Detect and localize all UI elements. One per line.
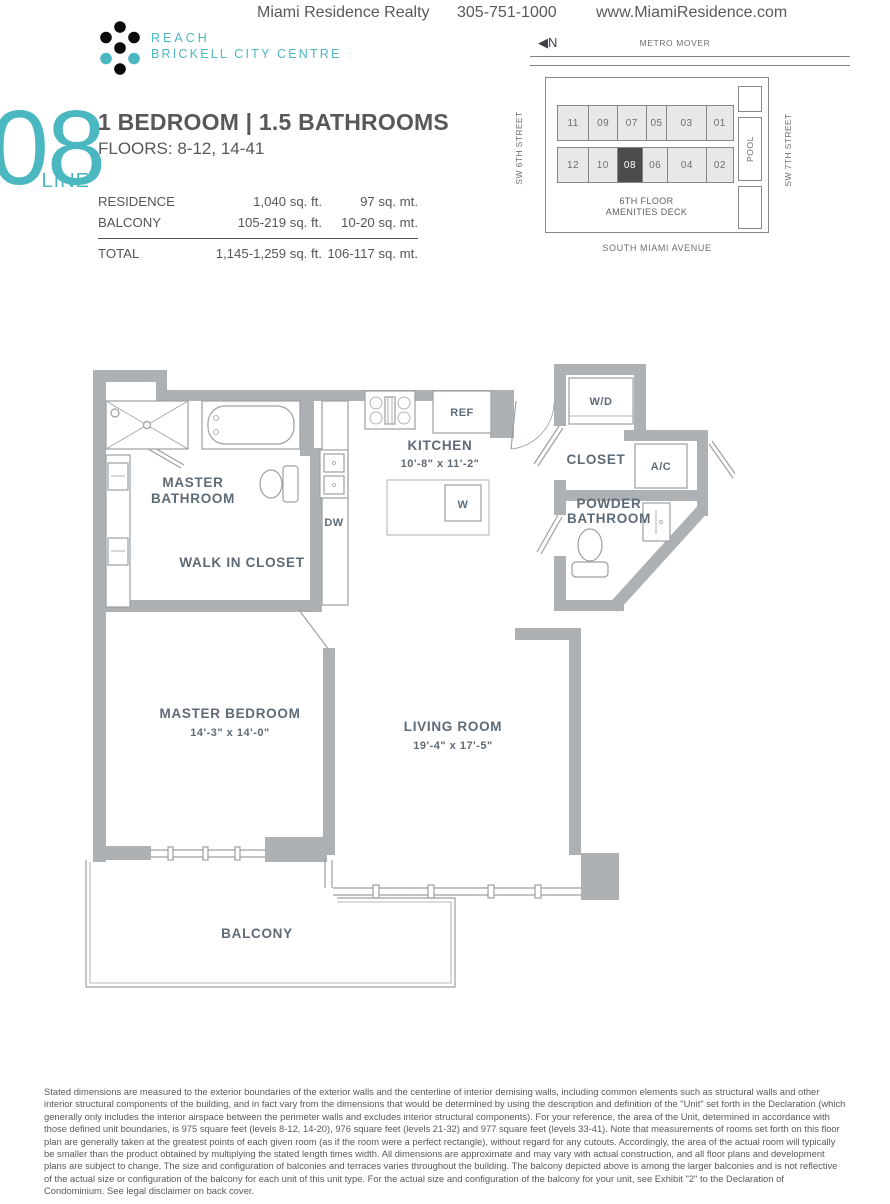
label-walk-in-closet: WALK IN CLOSET (179, 555, 304, 570)
floorplan-page: { "header": { "realty": "Miami Residence… (0, 0, 890, 1204)
realty-website[interactable]: www.MiamiResidence.com (596, 4, 787, 22)
keyplan-unit-08-highlighted[interactable]: 08 (617, 147, 644, 183)
floor-plan-drawing: MASTER BATHROOM WALK IN CLOSET KITCHEN 1… (75, 360, 735, 1025)
metro-rail-line (530, 65, 850, 66)
amenities-deck-label: 6TH FLOOR AMENITIES DECK (564, 196, 729, 218)
building-key-plan: ◀N METRO MOVER SW 6TH STREET SW 7TH STRE… (505, 35, 815, 270)
keyplan-unit-12[interactable]: 12 (557, 147, 589, 183)
row-label: RESIDENCE (98, 194, 198, 209)
row-sqmt: 97 sq. mt. (322, 194, 418, 209)
keyplan-unit-04[interactable]: 04 (667, 147, 707, 183)
metro-rail-line (530, 56, 850, 57)
metro-mover-label: METRO MOVER (565, 38, 785, 48)
unit-row-bottom: 12 10 08 06 04 02 (557, 147, 733, 183)
label-master-bathroom-2: BATHROOM (151, 491, 235, 506)
pool-column: POOL (738, 78, 762, 229)
unit-grid: 11 09 07 05 03 01 12 10 08 06 04 02 (557, 105, 733, 183)
unit-floors: FLOORS: 8-12, 14-41 (98, 139, 264, 159)
label-powder-bathroom: POWDER (577, 496, 642, 511)
realty-phone: 305-751-1000 (457, 4, 557, 22)
keyplan-unit-10[interactable]: 10 (588, 147, 617, 183)
table-row-residence: RESIDENCE 1,040 sq. ft. 97 sq. mt. (98, 191, 418, 212)
street-label-sw7: SW 7TH STREET (783, 95, 793, 205)
deck-block (738, 86, 762, 112)
table-divider (98, 238, 418, 239)
label-ref: REF (450, 407, 474, 419)
label-living-room-dims: 19'-4" x 17'-5" (413, 740, 492, 752)
keyplan-unit-09[interactable]: 09 (588, 105, 618, 141)
logo-name: REACH (151, 31, 342, 45)
label-w: W (458, 499, 469, 511)
street-label-sw6: SW 6TH STREET (514, 98, 524, 198)
keyplan-unit-07[interactable]: 07 (617, 105, 647, 141)
area-table: RESIDENCE 1,040 sq. ft. 97 sq. mt. BALCO… (98, 191, 418, 264)
row-sqmt: 10-20 sq. mt. (322, 215, 418, 230)
keyplan-unit-06[interactable]: 06 (642, 147, 668, 183)
site-outline: 11 09 07 05 03 01 12 10 08 06 04 02 POOL… (545, 77, 769, 233)
label-closet: CLOSET (567, 452, 626, 467)
keyplan-unit-03[interactable]: 03 (666, 105, 706, 141)
row-sqft: 105-219 sq. ft. (198, 215, 322, 230)
kitchen-fixtures (320, 391, 491, 605)
deck-block (738, 186, 762, 229)
unit-row-top: 11 09 07 05 03 01 (557, 105, 733, 141)
label-master-bathroom: MASTER (162, 475, 223, 490)
label-dw: DW (324, 517, 343, 529)
label-master-bedroom-dims: 14'-3" x 14'-0" (190, 727, 269, 739)
reach-logo-icon (98, 20, 144, 78)
label-wd: W/D (590, 396, 613, 408)
table-row-total: TOTAL 1,145-1,259 sq. ft. 106-117 sq. mt… (98, 243, 418, 264)
unit-line-label: LINE (30, 170, 90, 193)
label-living-room: LIVING ROOM (404, 719, 502, 734)
keyplan-unit-11[interactable]: 11 (557, 105, 589, 141)
street-label-south-miami: SOUTH MIAMI AVENUE (567, 243, 747, 253)
row-label: TOTAL (98, 246, 198, 261)
label-ac: A/C (651, 461, 671, 473)
reach-logo-wordmark: REACH BRICKELL CITY CENTRE (151, 31, 342, 61)
windows (151, 847, 581, 898)
table-row-balcony: BALCONY 105-219 sq. ft. 10-20 sq. mt. (98, 212, 418, 233)
label-powder-bathroom-2: BATHROOM (567, 511, 651, 526)
logo-subname: BRICKELL CITY CENTRE (151, 47, 342, 61)
row-sqft: 1,145-1,259 sq. ft. (198, 246, 322, 261)
row-label: BALCONY (98, 215, 198, 230)
legal-disclaimer: Stated dimensions are measured to the ex… (44, 1086, 846, 1198)
keyplan-unit-01[interactable]: 01 (706, 105, 734, 141)
label-kitchen-dims: 10'-8" x 11'-2" (401, 458, 480, 470)
unit-title: 1 BEDROOM | 1.5 BATHROOMS (98, 109, 449, 136)
balcony-outline (86, 860, 455, 987)
row-sqft: 1,040 sq. ft. (198, 194, 322, 209)
label-master-bedroom: MASTER BEDROOM (159, 706, 300, 721)
label-balcony: BALCONY (221, 926, 293, 941)
keyplan-unit-02[interactable]: 02 (706, 147, 734, 183)
label-kitchen: KITCHEN (408, 438, 473, 453)
pool-label: POOL (745, 136, 755, 162)
realty-name: Miami Residence Realty (257, 4, 430, 22)
pool-block: POOL (738, 117, 762, 181)
north-arrow-icon: ◀N (538, 35, 557, 51)
row-sqmt: 106-117 sq. mt. (322, 246, 418, 261)
keyplan-unit-05[interactable]: 05 (646, 105, 668, 141)
